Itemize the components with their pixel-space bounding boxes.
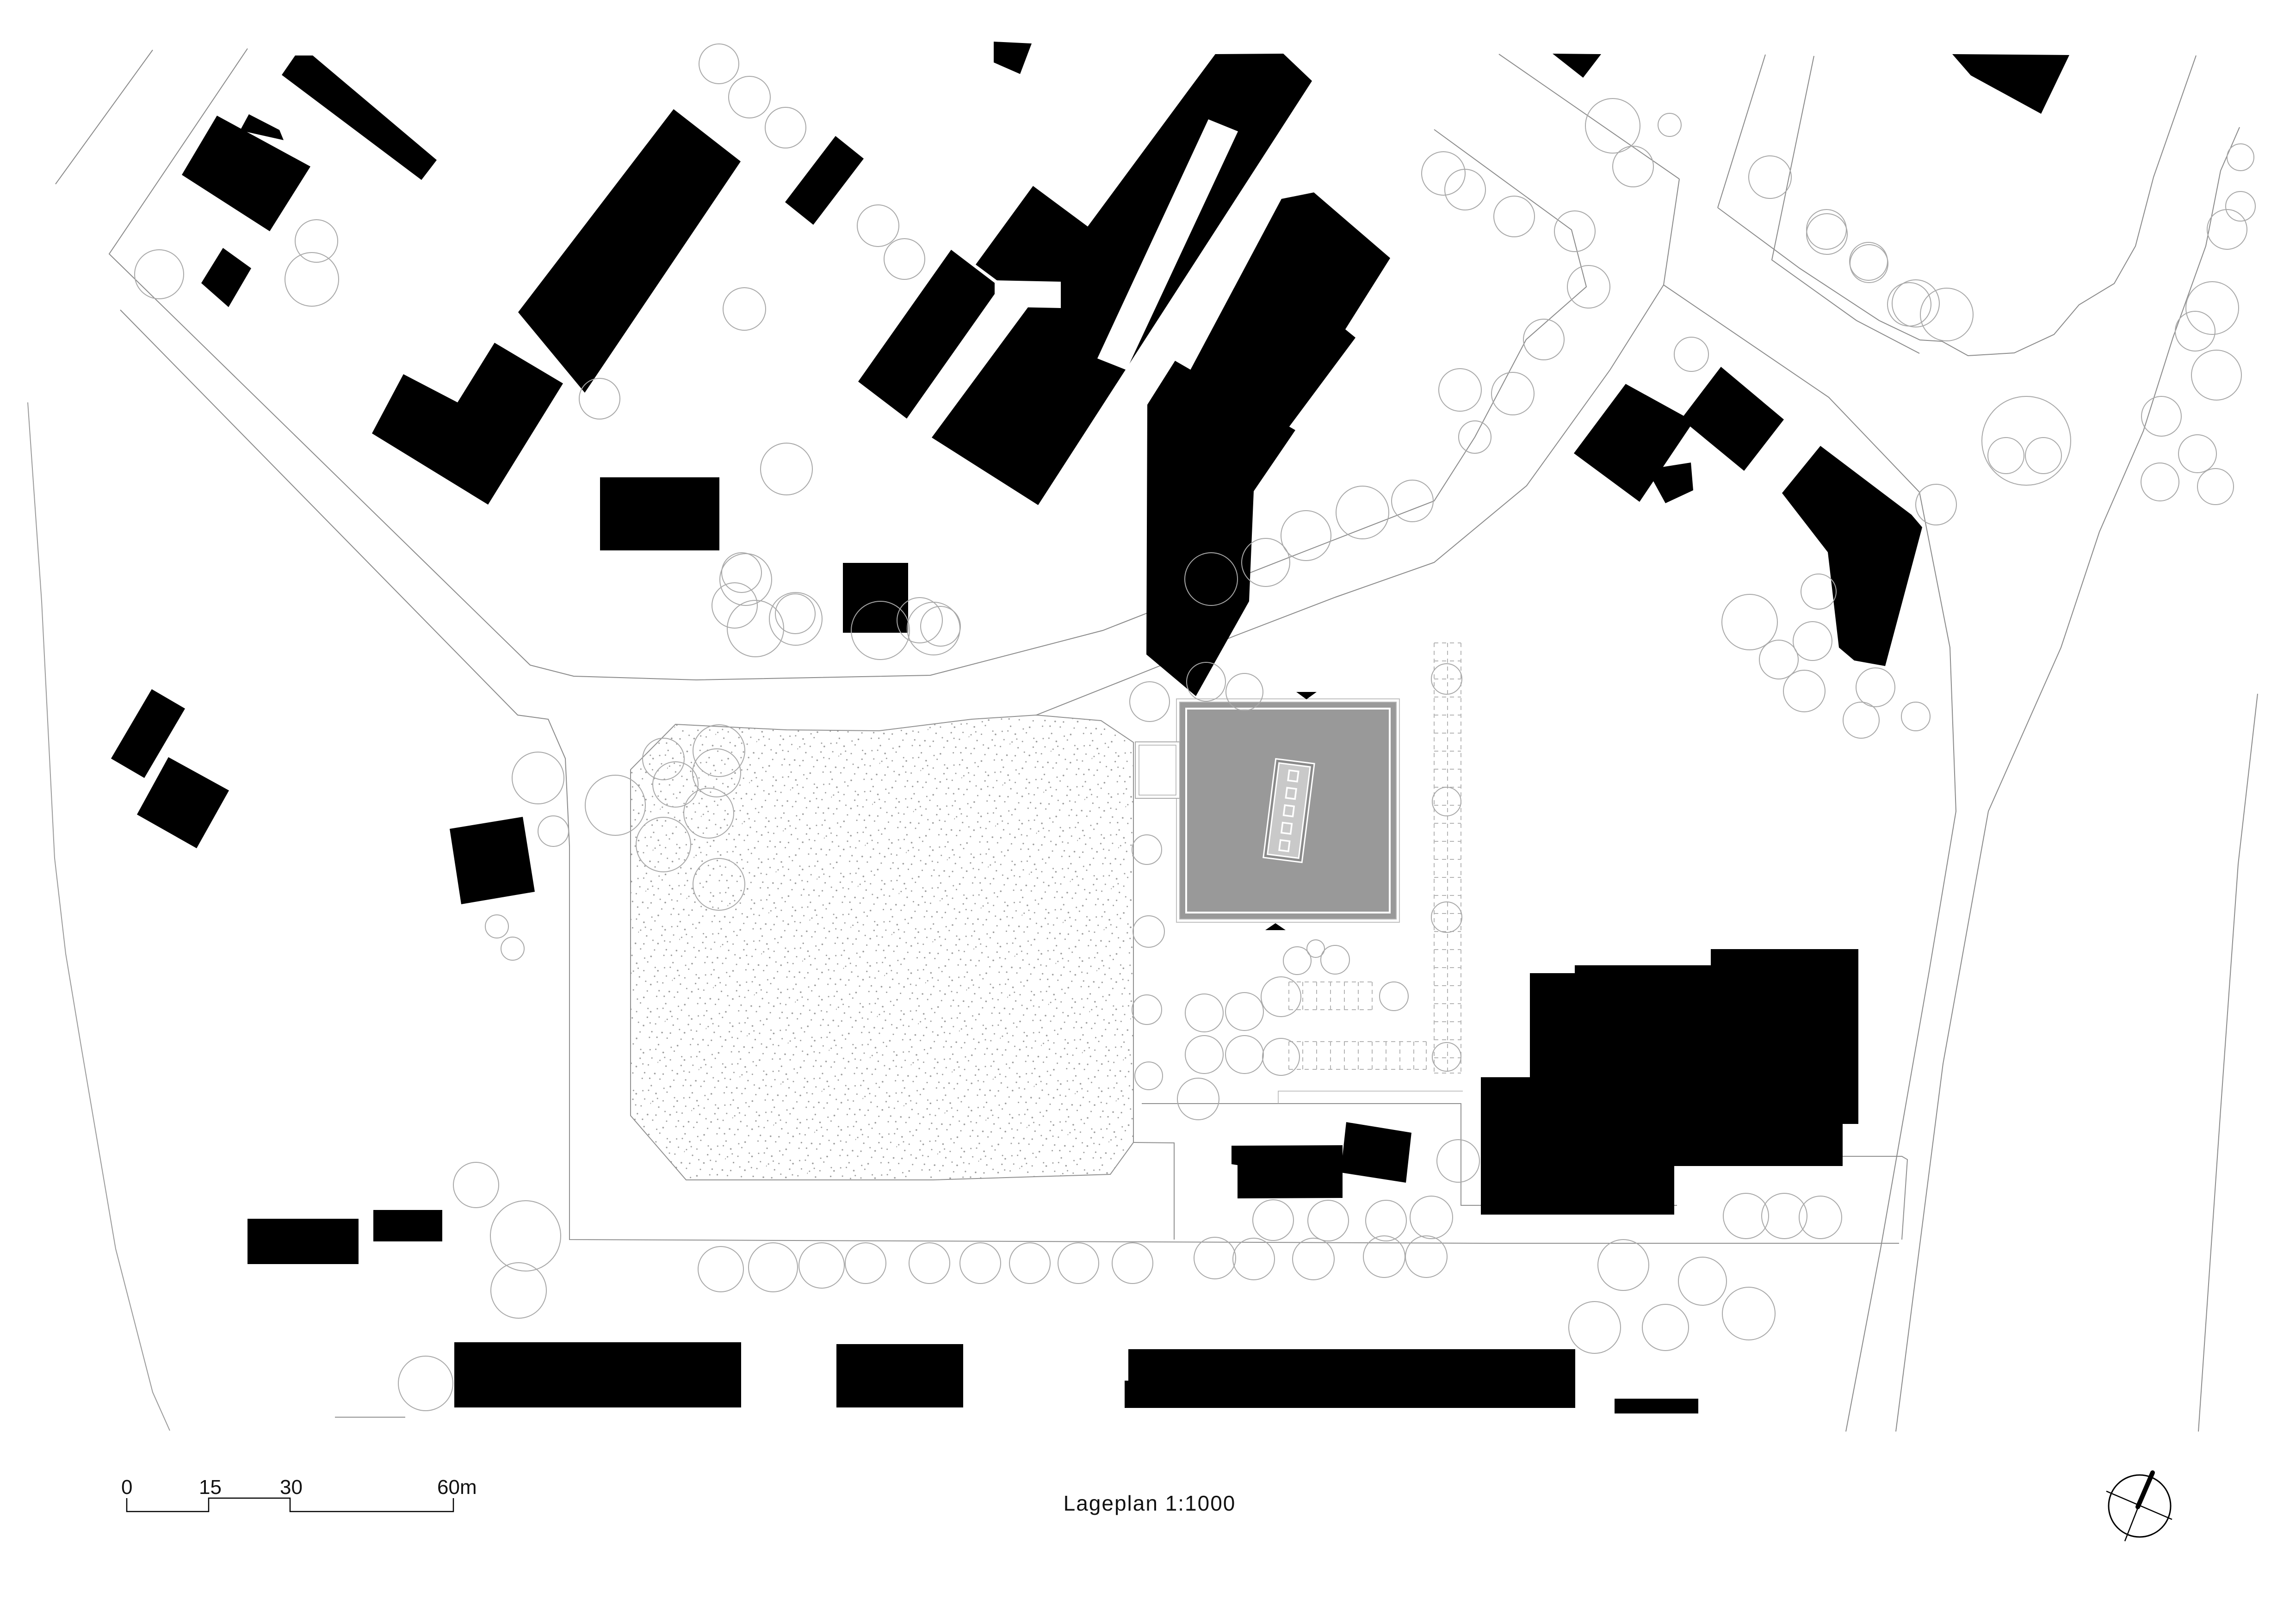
svg-text:60m: 60m <box>437 1476 477 1499</box>
svg-text:Lageplan 1:1000: Lageplan 1:1000 <box>1064 1491 1236 1515</box>
svg-text:0: 0 <box>121 1476 132 1499</box>
svg-text:15: 15 <box>199 1476 222 1499</box>
svg-text:30: 30 <box>280 1476 303 1499</box>
